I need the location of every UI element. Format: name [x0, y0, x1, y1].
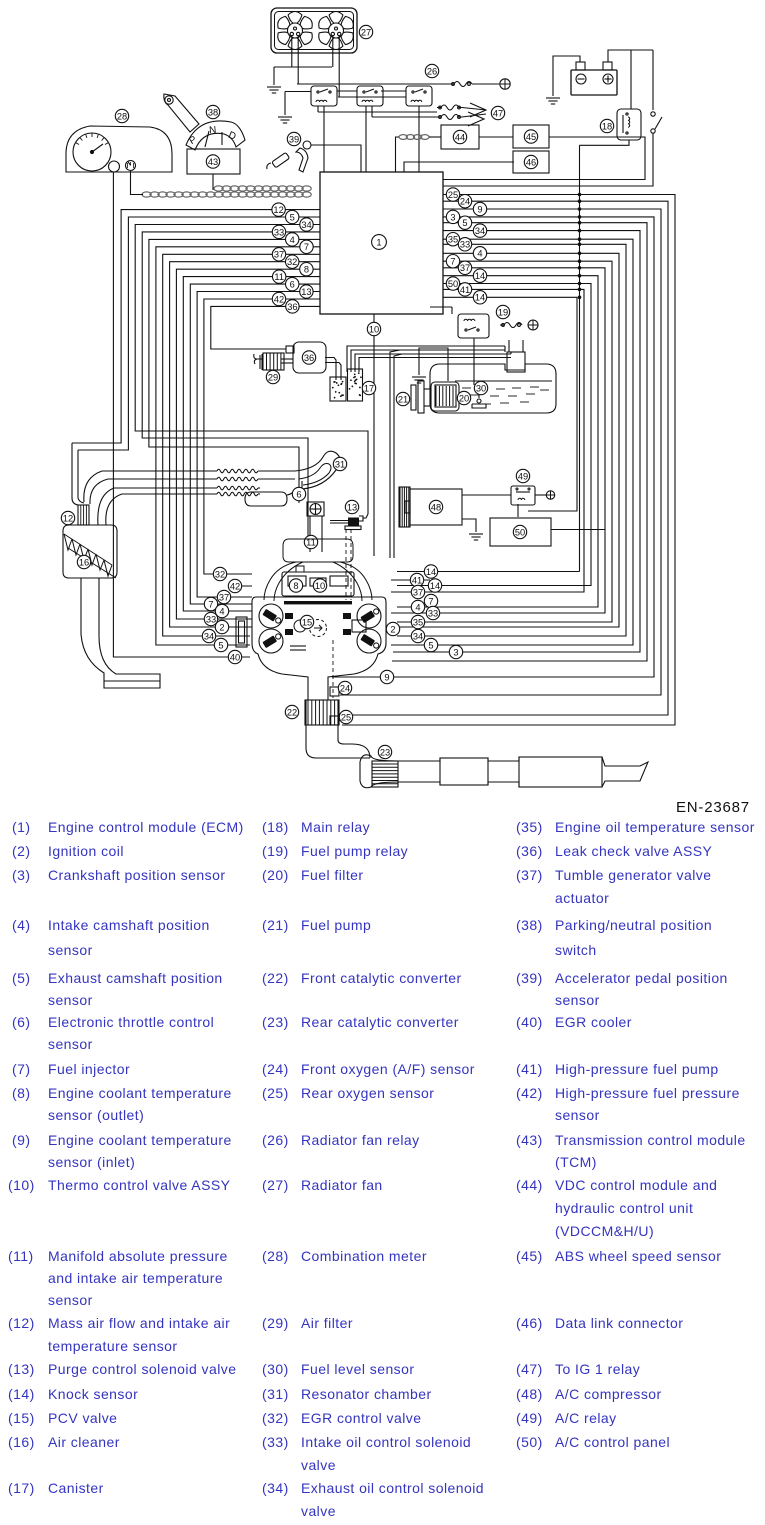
svg-text:2: 2 [390, 624, 395, 634]
svg-text:14: 14 [426, 567, 436, 577]
svg-text:7: 7 [428, 596, 433, 606]
svg-text:9: 9 [384, 672, 389, 682]
svg-text:8: 8 [304, 265, 309, 275]
svg-text:34: 34 [204, 631, 214, 641]
svg-text:30: 30 [476, 383, 486, 393]
svg-text:29: 29 [268, 372, 278, 382]
svg-text:18: 18 [602, 121, 612, 131]
svg-text:47: 47 [493, 108, 503, 118]
svg-text:16: 16 [79, 557, 89, 567]
svg-text:37: 37 [219, 592, 229, 602]
svg-text:48: 48 [431, 502, 441, 512]
svg-text:46: 46 [526, 157, 536, 167]
svg-text:40: 40 [230, 652, 240, 662]
svg-text:3: 3 [450, 212, 455, 222]
svg-text:36: 36 [287, 302, 297, 312]
svg-text:31: 31 [335, 459, 345, 469]
svg-text:32: 32 [215, 569, 225, 579]
svg-text:23: 23 [380, 747, 390, 757]
svg-text:33: 33 [428, 608, 438, 618]
svg-text:27: 27 [361, 27, 371, 37]
svg-text:6: 6 [290, 280, 295, 290]
svg-text:5: 5 [428, 640, 433, 650]
svg-text:9: 9 [477, 204, 482, 214]
svg-text:33: 33 [206, 614, 216, 624]
svg-text:34: 34 [413, 631, 423, 641]
svg-text:D: D [227, 130, 238, 143]
svg-text:44: 44 [455, 132, 465, 142]
svg-text:25: 25 [341, 712, 351, 722]
svg-text:4: 4 [219, 606, 224, 616]
svg-text:12: 12 [63, 513, 73, 523]
svg-text:12: 12 [273, 205, 283, 215]
svg-text:N: N [209, 125, 217, 137]
svg-text:5: 5 [290, 212, 295, 222]
svg-text:39: 39 [289, 134, 299, 144]
svg-text:10: 10 [315, 581, 325, 591]
svg-text:22: 22 [287, 707, 297, 717]
svg-text:37: 37 [460, 263, 470, 273]
svg-text:24: 24 [340, 683, 350, 693]
svg-text:13: 13 [347, 502, 357, 512]
svg-text:32: 32 [287, 257, 297, 267]
svg-text:33: 33 [460, 240, 470, 250]
svg-text:5: 5 [462, 218, 467, 228]
svg-text:17: 17 [364, 383, 374, 393]
svg-text:6: 6 [296, 489, 301, 499]
svg-text:7: 7 [208, 599, 213, 609]
svg-text:4: 4 [477, 249, 482, 259]
svg-text:4: 4 [290, 235, 295, 245]
svg-text:35: 35 [448, 235, 458, 245]
svg-text:11: 11 [274, 272, 284, 282]
svg-text:35: 35 [413, 617, 423, 627]
svg-text:50: 50 [515, 527, 525, 537]
svg-text:43: 43 [208, 157, 218, 167]
svg-text:50: 50 [448, 279, 458, 289]
svg-text:34: 34 [475, 226, 485, 236]
svg-text:41: 41 [412, 575, 422, 585]
svg-text:14: 14 [430, 581, 440, 591]
svg-text:41: 41 [460, 285, 470, 295]
svg-text:37: 37 [413, 587, 423, 597]
svg-text:28: 28 [117, 111, 127, 121]
svg-text:13: 13 [301, 287, 311, 297]
svg-text:38: 38 [208, 107, 218, 117]
svg-text:20: 20 [459, 393, 469, 403]
svg-text:1: 1 [376, 237, 381, 247]
svg-text:45: 45 [526, 132, 536, 142]
svg-text:33: 33 [274, 227, 284, 237]
svg-text:25: 25 [448, 190, 458, 200]
svg-text:49: 49 [518, 471, 528, 481]
svg-text:36: 36 [304, 353, 314, 363]
svg-text:14: 14 [475, 293, 485, 303]
svg-text:15: 15 [302, 617, 312, 627]
svg-text:21: 21 [398, 394, 408, 404]
svg-text:42: 42 [230, 581, 240, 591]
svg-text:10: 10 [369, 324, 379, 334]
svg-text:4: 4 [415, 602, 420, 612]
svg-text:7: 7 [304, 242, 309, 252]
svg-text:3: 3 [453, 647, 458, 657]
svg-text:26: 26 [427, 66, 437, 76]
svg-text:8: 8 [293, 581, 298, 591]
svg-text:7: 7 [450, 257, 455, 267]
svg-text:42: 42 [274, 294, 284, 304]
svg-text:34: 34 [301, 220, 311, 230]
svg-text:2: 2 [219, 622, 224, 632]
svg-text:5: 5 [218, 640, 223, 650]
svg-text:19: 19 [498, 307, 508, 317]
svg-text:37: 37 [274, 250, 284, 260]
svg-text:14: 14 [475, 271, 485, 281]
svg-text:24: 24 [460, 197, 470, 207]
